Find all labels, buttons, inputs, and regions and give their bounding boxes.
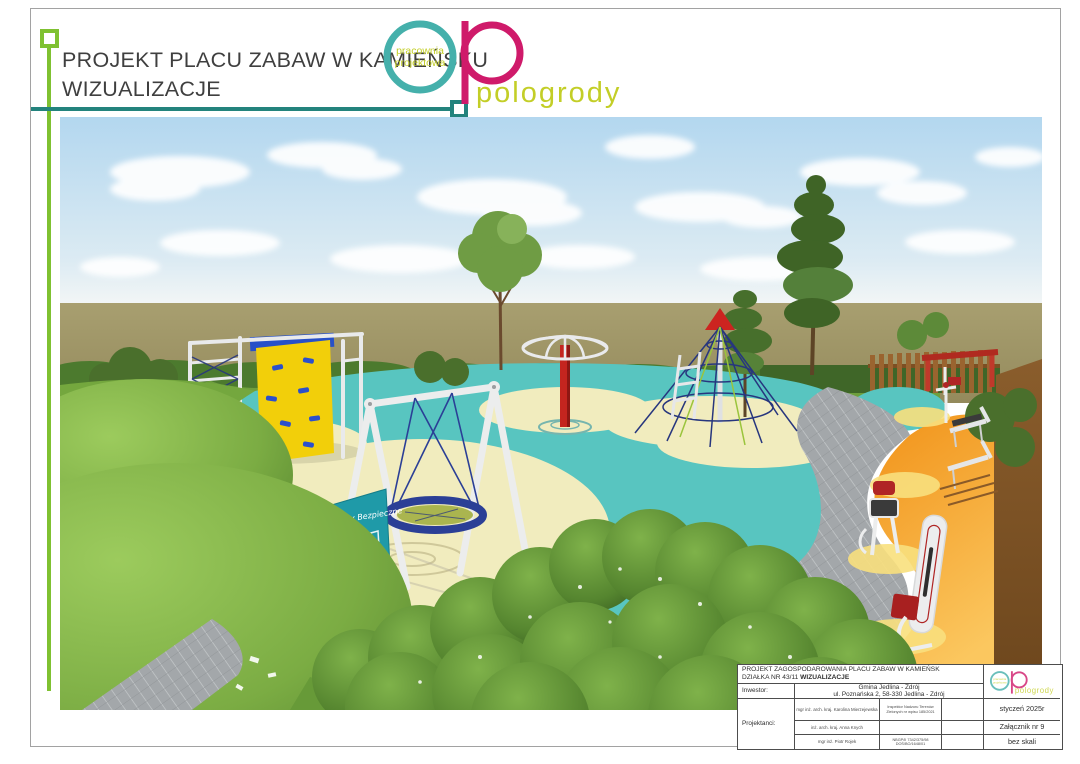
designer-2-name: inż. arch. kraj. Anna Knych bbox=[795, 721, 880, 735]
attachment-cell: Załącznik nr 9 bbox=[984, 721, 1060, 735]
designer-2-credential bbox=[880, 721, 942, 735]
logo-circle-text-2: projektowa bbox=[395, 57, 446, 69]
title-block-logo: pracownia projektowa pologrody bbox=[989, 668, 1055, 696]
investor-label: Inwestor: bbox=[738, 684, 795, 699]
empty-cell-2 bbox=[942, 721, 984, 735]
scale-cell: bez skali bbox=[984, 735, 1060, 749]
title-block: PROJEKT ZAGOSPODAROWANIA PLACU ZABAW W K… bbox=[737, 664, 1063, 750]
green-accent-square bbox=[40, 29, 59, 48]
logo-circle-text-1: pracownia bbox=[396, 45, 444, 57]
designer-1-name: mgr inż. arch. kraj. Karolina Mierzejews… bbox=[795, 699, 880, 721]
svg-text:projektowa: projektowa bbox=[993, 680, 1007, 684]
green-accent-line bbox=[47, 43, 51, 691]
empty-cell-3 bbox=[942, 735, 984, 749]
designer-3-name: mgr inż. Piotr Rojek bbox=[795, 735, 880, 749]
project-line1: PROJEKT ZAGOSPODAROWANIA PLACU ZABAW W K… bbox=[742, 666, 940, 674]
title-block-project: PROJEKT ZAGOSPODAROWANIA PLACU ZABAW W K… bbox=[738, 665, 984, 684]
empty-cell-1 bbox=[942, 699, 984, 721]
designer-3-credential: NBGP/II 7342/375/98 DOŚ/BO/1648/01 bbox=[880, 735, 942, 749]
sky bbox=[60, 117, 1042, 309]
project-line2: DZIAŁKA NR 43/11 WIZUALIZACJE bbox=[742, 674, 849, 682]
date-cell: styczeń 2025r bbox=[984, 699, 1060, 721]
title-block-logo-cell: pracownia projektowa pologrody bbox=[984, 665, 1060, 699]
drawing-sheet: PROJEKT PLACU ZABAW W KAMIEŃSKU WIZUALIZ… bbox=[0, 0, 1080, 764]
investor-value: Gmina Jedlina - Zdrój ul. Poznańska 2, 5… bbox=[795, 684, 984, 699]
logo-wordmark: pologrody bbox=[476, 77, 621, 109]
brand-logo: pracownia projektowa pologrody bbox=[380, 11, 625, 111]
designers-label: Projektanci: bbox=[738, 699, 795, 749]
playground-render: Zabawy Bezpieczne bbox=[60, 117, 1042, 710]
designer-1-credential: Inspektor Nadzoru Terenów Zielonych nr w… bbox=[880, 699, 942, 721]
svg-text:pologrody: pologrody bbox=[1015, 686, 1054, 695]
logo-o-circle: pracownia projektowa bbox=[387, 24, 453, 90]
